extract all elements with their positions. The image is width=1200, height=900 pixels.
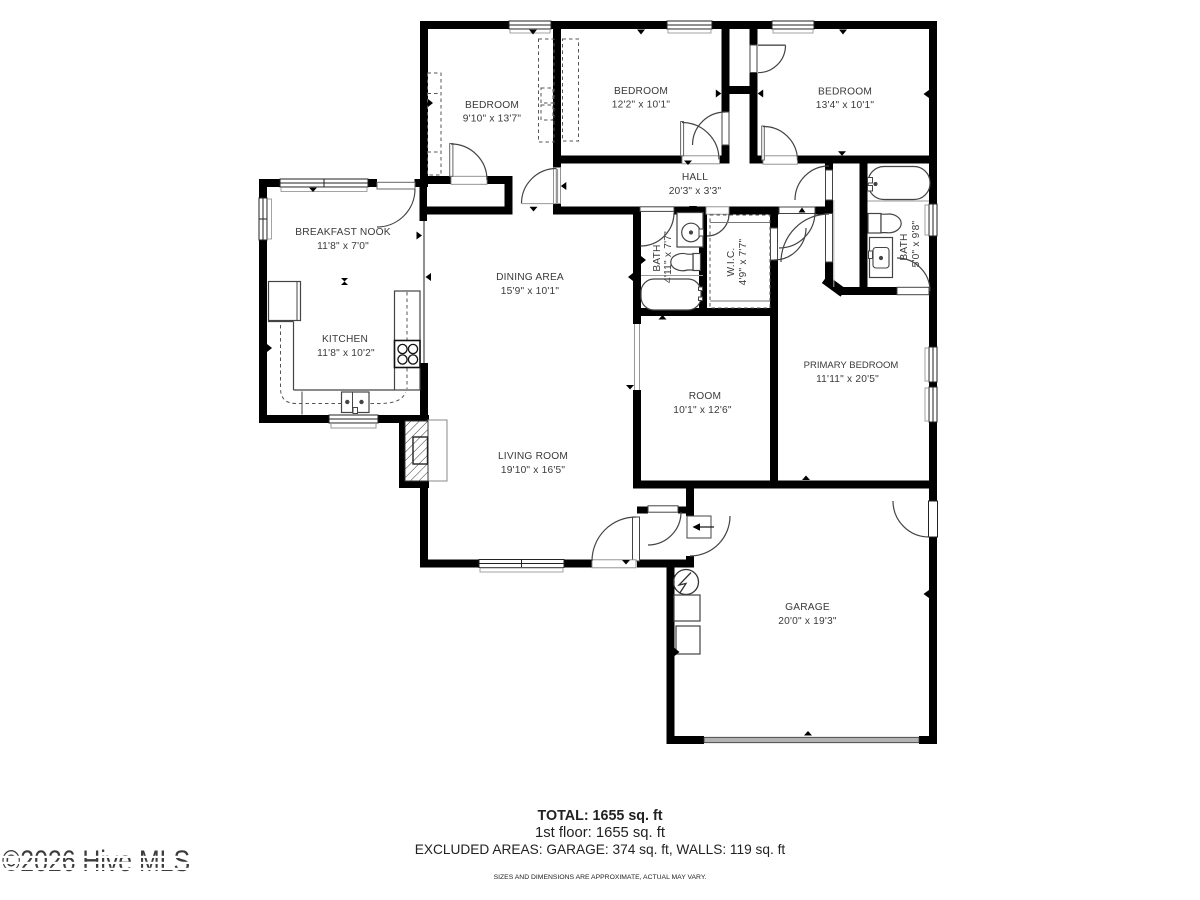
svg-text:9'10" x 13'7": 9'10" x 13'7" bbox=[463, 114, 522, 125]
svg-text:LIVING ROOM: LIVING ROOM bbox=[498, 451, 568, 462]
svg-text:TOTAL: 1655 sq. ft: TOTAL: 1655 sq. ft bbox=[538, 808, 663, 824]
svg-text:W.I.C.: W.I.C. bbox=[726, 248, 737, 277]
svg-text:20'0" x 19'3": 20'0" x 19'3" bbox=[778, 616, 837, 627]
svg-text:15'9" x 10'1": 15'9" x 10'1" bbox=[501, 286, 560, 297]
svg-text:11'8" x 7'0": 11'8" x 7'0" bbox=[317, 241, 369, 252]
svg-text:12'2" x 10'1": 12'2" x 10'1" bbox=[612, 100, 671, 111]
svg-text:EXCLUDED AREAS: GARAGE: 374 sq: EXCLUDED AREAS: GARAGE: 374 sq. ft, WALL… bbox=[415, 842, 786, 857]
svg-text:BEDROOM: BEDROOM bbox=[465, 100, 519, 111]
svg-text:GARAGE: GARAGE bbox=[785, 602, 830, 613]
svg-text:BREAKFAST NOOK: BREAKFAST NOOK bbox=[295, 227, 390, 238]
svg-text:11'8" x 10'2": 11'8" x 10'2" bbox=[317, 348, 375, 359]
svg-text:ROOM: ROOM bbox=[689, 391, 722, 402]
svg-text:HALL: HALL bbox=[682, 172, 708, 183]
svg-text:19'10" x 16'5": 19'10" x 16'5" bbox=[501, 465, 566, 476]
svg-text:BATH: BATH bbox=[899, 233, 910, 260]
svg-text:13'4" x 10'1": 13'4" x 10'1" bbox=[816, 100, 875, 111]
svg-text:KITCHEN: KITCHEN bbox=[322, 334, 368, 345]
svg-text:4'11" x 7'7": 4'11" x 7'7" bbox=[663, 231, 674, 283]
svg-text:4'9" x 7'7": 4'9" x 7'7" bbox=[738, 238, 749, 285]
svg-text:5'0" x 9'8": 5'0" x 9'8" bbox=[911, 220, 922, 267]
svg-text:11'11" x 20'5": 11'11" x 20'5" bbox=[816, 374, 879, 385]
svg-text:DINING AREA: DINING AREA bbox=[496, 272, 564, 283]
svg-text:SIZES AND DIMENSIONS ARE APPRO: SIZES AND DIMENSIONS ARE APPROXIMATE, AC… bbox=[494, 874, 707, 881]
svg-text:10'1" x 12'6": 10'1" x 12'6" bbox=[673, 405, 732, 416]
svg-text:1st floor: 1655 sq. ft: 1st floor: 1655 sq. ft bbox=[535, 825, 665, 841]
svg-text:BATH: BATH bbox=[652, 244, 663, 271]
svg-text:BEDROOM: BEDROOM bbox=[818, 87, 872, 98]
svg-text:BEDROOM: BEDROOM bbox=[614, 86, 668, 97]
svg-text:©2026 Hive MLS: ©2026 Hive MLS bbox=[2, 845, 190, 878]
svg-text:PRIMARY BEDROOM: PRIMARY BEDROOM bbox=[804, 360, 899, 371]
svg-text:20'3" x 3'3": 20'3" x 3'3" bbox=[669, 186, 722, 197]
